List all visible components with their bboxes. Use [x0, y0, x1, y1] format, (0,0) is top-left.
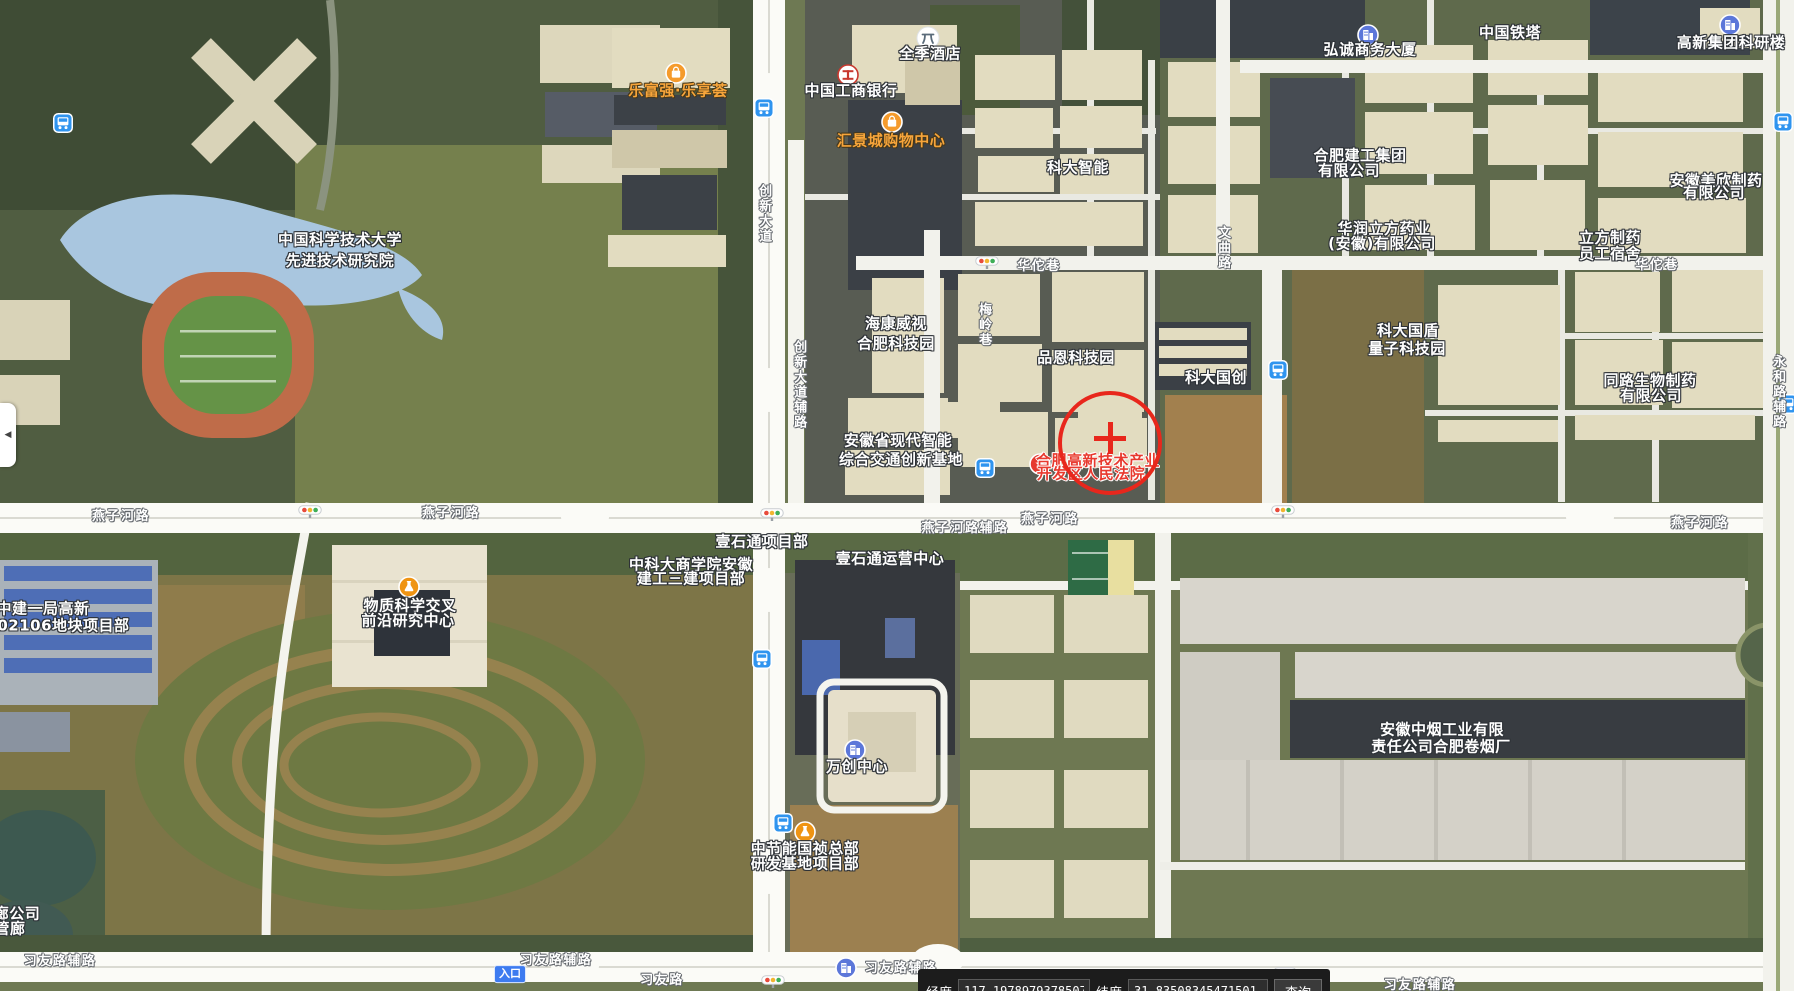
traffic-light-icon[interactable] — [298, 505, 322, 519]
sidebar-collapse-tab[interactable]: ◀ — [0, 403, 16, 467]
query-button[interactable]: 查询 — [1274, 979, 1322, 991]
road-label: 燕子河路 — [1021, 512, 1079, 528]
bus-stop-icon[interactable] — [773, 813, 793, 833]
traffic-light-icon[interactable] — [760, 508, 784, 522]
poi-label[interactable]: 责任公司合肥卷烟厂 — [1371, 738, 1511, 757]
office-building-icon[interactable] — [835, 957, 857, 979]
road-label: 燕子河路辅路 — [921, 521, 1008, 537]
poi-label[interactable]: 建工三建项目部 — [637, 570, 746, 589]
poi-label-shopping[interactable]: 汇景城购物中心 — [837, 132, 946, 151]
road-label: 燕子河路 — [92, 509, 150, 525]
road-label-vertical: 梅岭巷 — [975, 303, 991, 348]
poi-label[interactable]: 安徽中烟工业有限 — [1380, 721, 1504, 740]
chevron-left-icon: ◀ — [5, 430, 12, 440]
poi-label-shopping[interactable]: 乐富强·乐享荟 — [628, 82, 727, 101]
poi-label[interactable]: 有限公司 — [1318, 162, 1380, 181]
poi-label[interactable]: 品恩科技园 — [1037, 349, 1115, 368]
road-label-vertical: 文曲路 — [1214, 226, 1230, 271]
entrance-badge: 入口 — [494, 965, 526, 983]
traffic-light-icon[interactable] — [1271, 505, 1295, 519]
road-label: 习友路 — [640, 973, 684, 989]
latitude-input[interactable] — [1128, 979, 1268, 991]
road-label: 燕子河路 — [1671, 516, 1729, 532]
poi-label[interactable]: 管廊 — [0, 920, 26, 939]
poi-label[interactable]: 中国科学技术大学 — [278, 231, 402, 250]
coordinate-query-bar: 经度 纬度 查询 — [918, 969, 1330, 991]
satellite-map-view[interactable]: ★中国科学技术大学先进技术研究院全季酒店中国工商银行科大智能弘诚商务大厦中国铁塔… — [0, 0, 1794, 991]
longitude-input[interactable] — [958, 979, 1090, 991]
poi-label[interactable]: 合肥科技园 — [857, 335, 935, 354]
bus-stop-icon[interactable] — [53, 113, 73, 133]
research-lab-icon[interactable] — [398, 576, 420, 598]
traffic-light-icon[interactable] — [975, 256, 999, 270]
poi-label[interactable]: 壹石通项目部 — [715, 533, 808, 552]
poi-label[interactable]: 中国工商银行 — [804, 82, 897, 101]
road-label-vertical: 创新大道辅路 — [790, 340, 806, 430]
poi-label[interactable]: 综合交通创新基地 — [839, 451, 963, 470]
poi-label[interactable]: 研发基地项目部 — [751, 855, 860, 874]
latitude-label: 纬度 — [1096, 982, 1122, 991]
road-label: 华佗巷 — [1635, 258, 1679, 274]
poi-label[interactable]: 科大国创 — [1185, 369, 1247, 388]
longitude-label: 经度 — [926, 982, 952, 991]
poi-label[interactable]: 万创中心 — [826, 758, 888, 777]
poi-label[interactable]: 有限公司 — [1620, 387, 1682, 406]
bus-stop-icon[interactable] — [975, 458, 995, 478]
poi-label[interactable]: 安徽省现代智能 — [844, 432, 953, 451]
poi-label[interactable]: 全季酒店 — [899, 45, 961, 64]
poi-label[interactable]: 有限公司 — [1683, 184, 1745, 203]
poi-label[interactable]: 壹石通运营中心 — [836, 550, 945, 569]
crosshair-marker — [1094, 422, 1126, 454]
road-label: 习友路辅路 — [520, 953, 593, 969]
bus-stop-icon[interactable] — [754, 98, 774, 118]
bus-stop-icon[interactable] — [1268, 360, 1288, 380]
map-annotation-layer: ★中国科学技术大学先进技术研究院全季酒店中国工商银行科大智能弘诚商务大厦中国铁塔… — [0, 0, 1794, 991]
shopping-mall-icon[interactable] — [881, 111, 903, 133]
road-label: 华佗巷 — [1017, 259, 1061, 275]
poi-label[interactable]: 先进技术研究院 — [286, 252, 395, 271]
road-label: 习友路辅路 — [1384, 978, 1457, 991]
road-label: 习友路辅路 — [24, 954, 97, 970]
poi-label[interactable]: 科大国盾 — [1377, 322, 1439, 341]
poi-label[interactable]: 海康威视 — [865, 315, 927, 334]
poi-label[interactable]: 202106地块项目部 — [0, 617, 130, 636]
poi-label[interactable]: 科大智能 — [1047, 159, 1109, 178]
poi-label[interactable]: 量子科技园 — [1368, 340, 1446, 359]
poi-label[interactable]: 中建一局高新 — [0, 600, 90, 619]
traffic-light-icon[interactable] — [761, 975, 785, 989]
bus-stop-icon[interactable] — [752, 649, 772, 669]
poi-label[interactable]: 弘诚商务大厦 — [1323, 41, 1416, 60]
road-label-vertical: 永和路辅路 — [1769, 355, 1785, 430]
poi-label[interactable]: 中国铁塔 — [1479, 24, 1541, 43]
poi-label[interactable]: 前沿研究中心 — [361, 612, 454, 631]
poi-label[interactable]: 高新集团科研楼 — [1677, 34, 1786, 53]
bus-stop-icon[interactable] — [1773, 112, 1793, 132]
road-label: 燕子河路 — [422, 506, 480, 522]
poi-label[interactable]: (安徽)有限公司 — [1328, 235, 1436, 254]
poi-label[interactable]: 员工宿舍 — [1579, 245, 1641, 264]
road-label-vertical: 创新大道 — [755, 184, 771, 244]
